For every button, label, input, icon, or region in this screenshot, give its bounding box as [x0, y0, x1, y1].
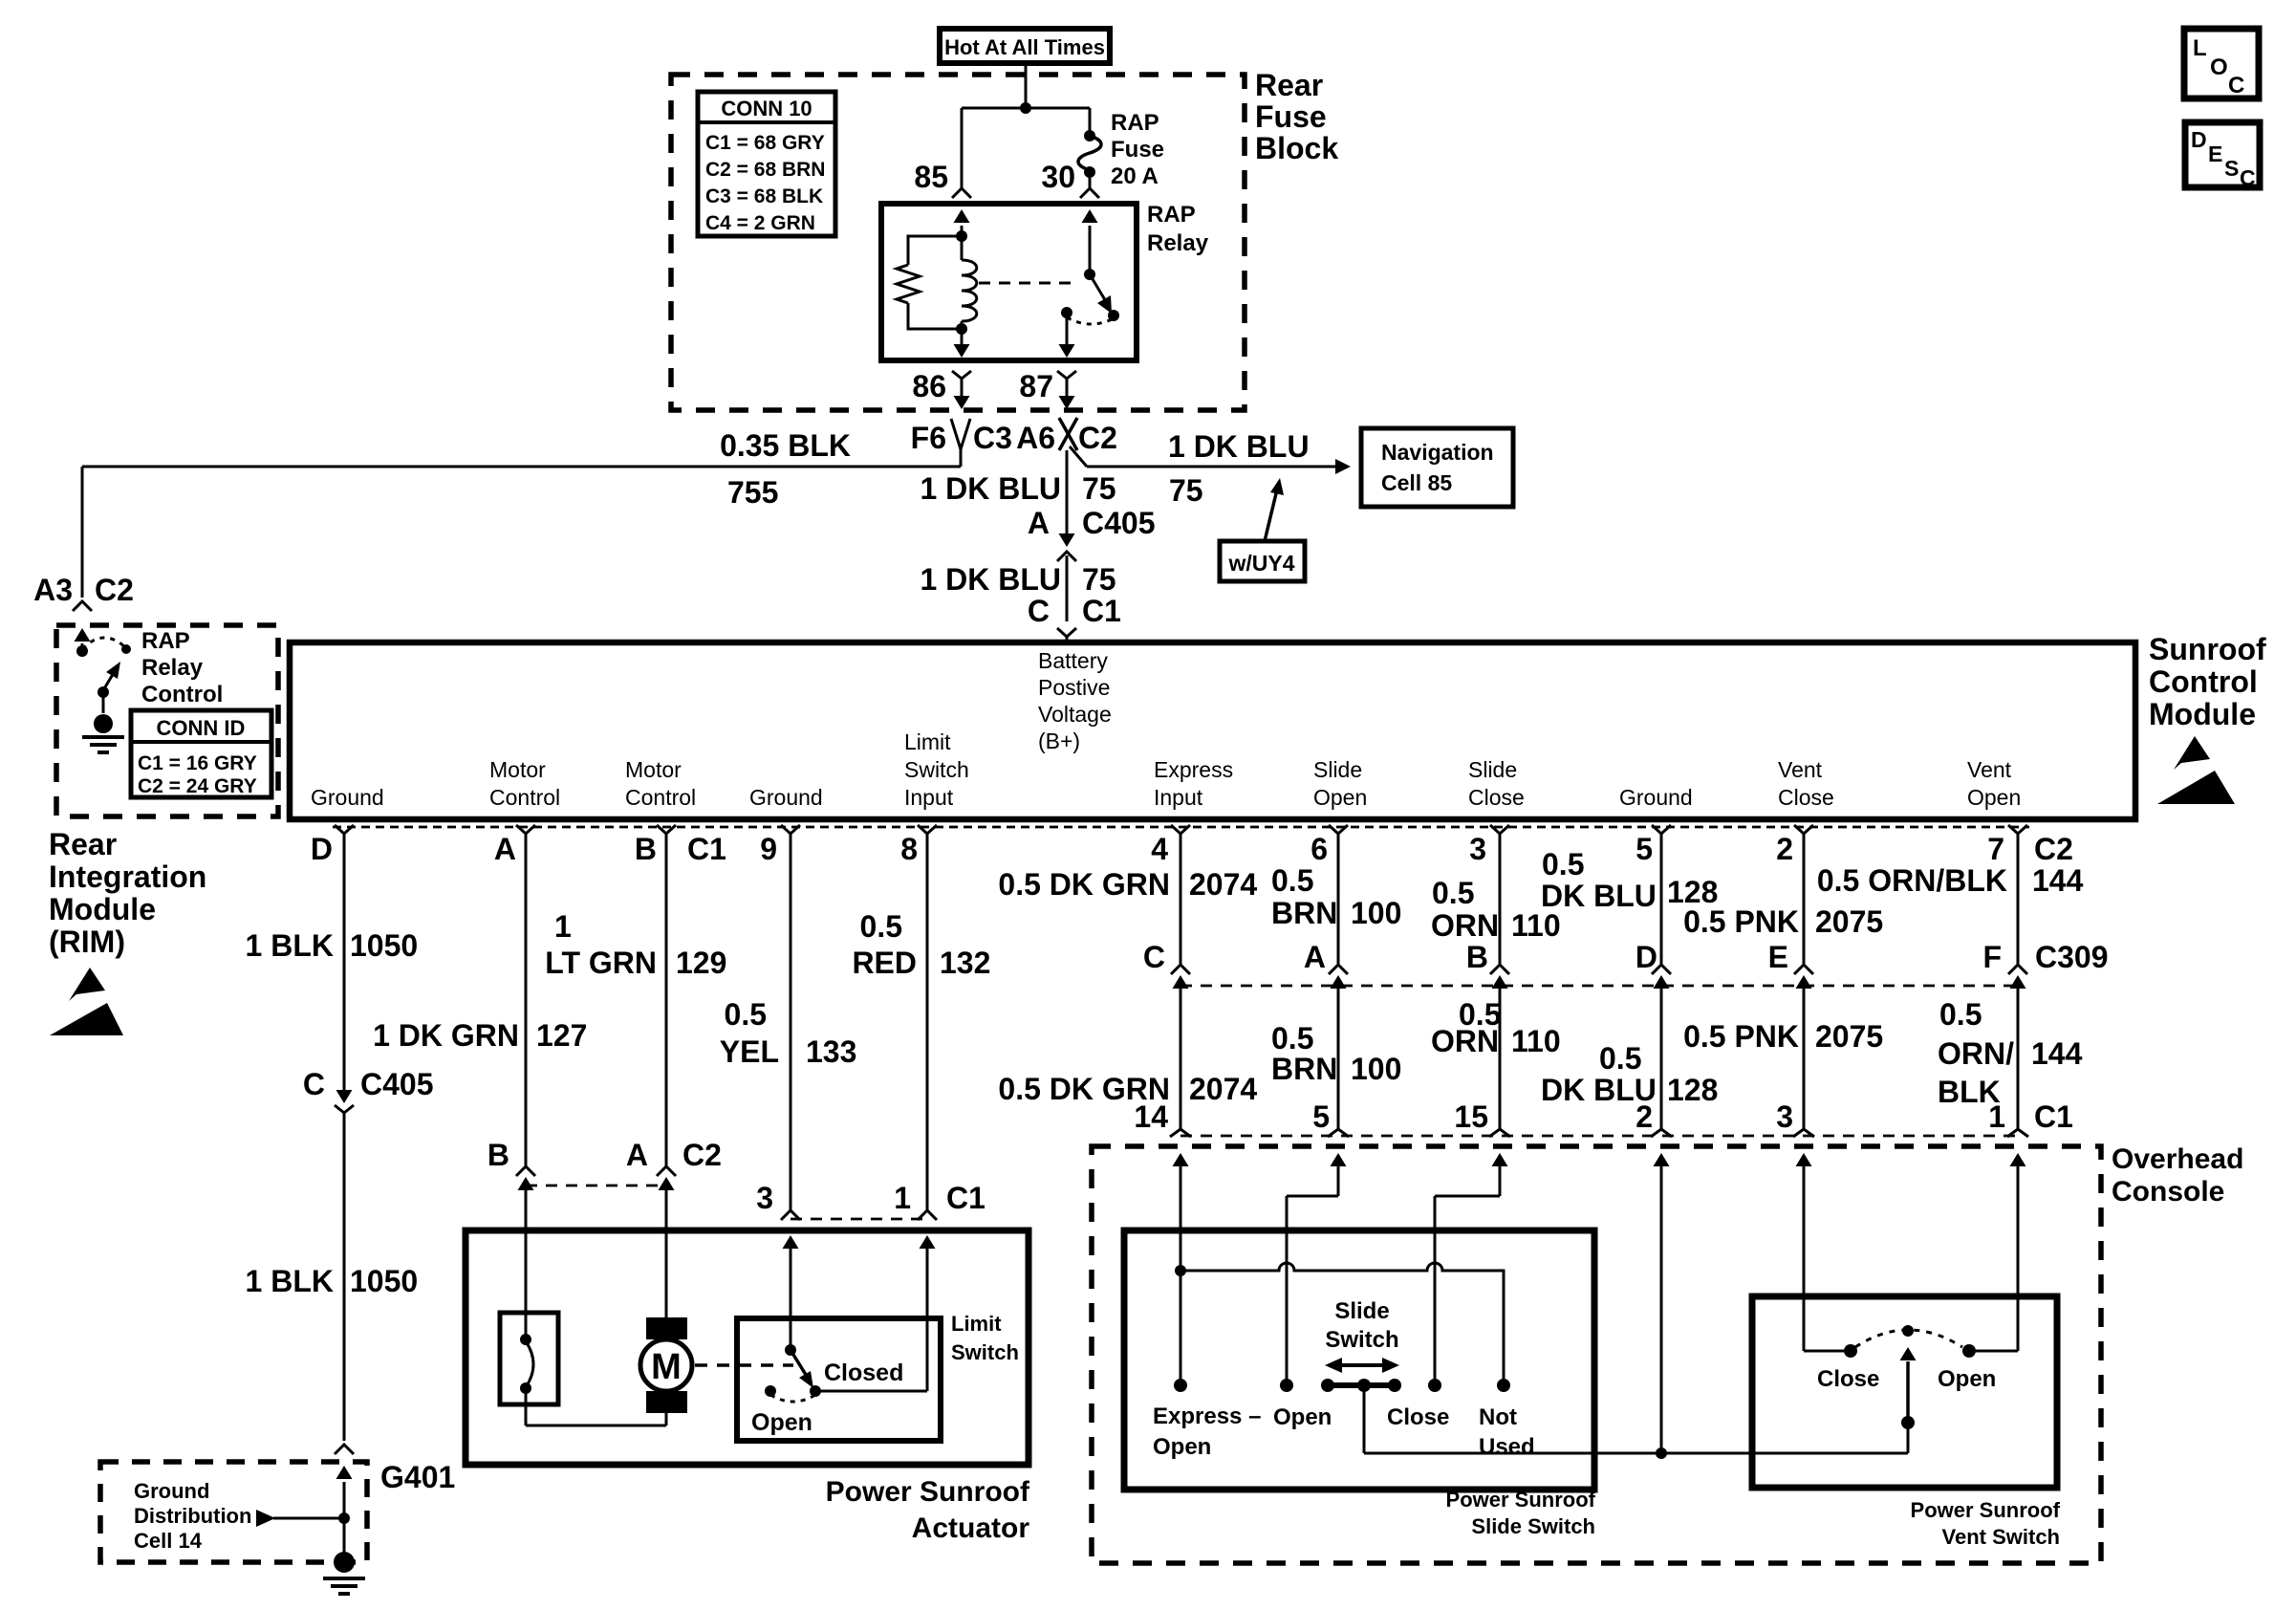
svg-text:1 DK BLU: 1 DK BLU — [1168, 429, 1310, 464]
svg-text:O: O — [2210, 54, 2228, 80]
svg-text:8: 8 — [900, 832, 918, 866]
svg-text:(RIM): (RIM) — [49, 925, 125, 959]
svg-text:15: 15 — [1454, 1099, 1488, 1134]
svg-text:30: 30 — [1041, 160, 1075, 194]
svg-text:Navigation: Navigation — [1381, 440, 1494, 465]
svg-text:Not: Not — [1479, 1404, 1517, 1430]
svg-text:D: D — [2191, 127, 2207, 152]
svg-text:Control: Control — [2149, 664, 2258, 699]
svg-text:1050: 1050 — [350, 928, 418, 963]
svg-text:1 DK BLU: 1 DK BLU — [920, 471, 1061, 506]
svg-text:ORN: ORN — [1431, 1024, 1499, 1058]
svg-text:Ground: Ground — [1619, 785, 1693, 810]
svg-text:Open: Open — [1938, 1366, 1996, 1392]
svg-text:Overhead: Overhead — [2112, 1143, 2243, 1175]
svg-text:6: 6 — [1310, 832, 1328, 866]
svg-text:CONN ID: CONN ID — [157, 716, 246, 740]
svg-text:Slide: Slide — [1313, 757, 1362, 782]
svg-text:0.5: 0.5 — [725, 997, 767, 1032]
svg-text:S: S — [2224, 156, 2239, 181]
svg-text:87: 87 — [1019, 369, 1053, 403]
svg-text:C1 = 16 GRY: C1 = 16 GRY — [138, 752, 257, 774]
svg-text:Input: Input — [904, 785, 954, 810]
svg-text:75: 75 — [1082, 471, 1116, 506]
svg-text:1: 1 — [894, 1181, 911, 1215]
svg-text:86: 86 — [912, 369, 946, 403]
svg-text:Postive: Postive — [1038, 675, 1110, 700]
svg-text:Limit: Limit — [951, 1312, 1002, 1336]
svg-text:110: 110 — [1511, 908, 1561, 943]
svg-text:C3: C3 — [973, 421, 1012, 455]
svg-text:0.5: 0.5 — [1599, 1041, 1641, 1076]
svg-text:Used: Used — [1479, 1434, 1535, 1460]
svg-text:Input: Input — [1154, 785, 1203, 810]
svg-text:0.5: 0.5 — [1542, 847, 1584, 881]
svg-text:D: D — [311, 832, 333, 866]
svg-text:Rear: Rear — [49, 827, 117, 861]
svg-text:100: 100 — [1351, 896, 1401, 930]
svg-text:5: 5 — [1312, 1099, 1330, 1134]
svg-text:14: 14 — [1134, 1099, 1168, 1134]
svg-text:133: 133 — [806, 1034, 856, 1069]
svg-text:E: E — [2208, 141, 2222, 166]
svg-text:C1: C1 — [687, 832, 726, 866]
svg-text:Close: Close — [1817, 1366, 1879, 1392]
svg-text:Ground: Ground — [749, 785, 823, 810]
svg-text:RAP: RAP — [1111, 110, 1159, 136]
svg-text:DK BLU: DK BLU — [1541, 879, 1657, 913]
svg-text:Sunroof: Sunroof — [2149, 632, 2266, 666]
svg-text:1: 1 — [554, 909, 572, 944]
svg-text:0.5: 0.5 — [860, 909, 902, 944]
svg-text:C309: C309 — [2035, 940, 2109, 974]
svg-text:1 BLK: 1 BLK — [246, 1264, 334, 1298]
svg-text:C4 = 2 GRN: C4 = 2 GRN — [705, 212, 815, 234]
svg-text:B: B — [635, 832, 657, 866]
svg-text:9: 9 — [760, 832, 777, 866]
svg-text:Power Sunroof: Power Sunroof — [1911, 1498, 2061, 1522]
svg-text:Motor: Motor — [489, 757, 546, 782]
svg-text:Open: Open — [1273, 1404, 1332, 1430]
svg-text:1 DK BLU: 1 DK BLU — [920, 562, 1061, 597]
svg-text:Fuse: Fuse — [1255, 99, 1327, 134]
svg-text:Ground: Ground — [134, 1479, 209, 1503]
svg-text:1 DK GRN: 1 DK GRN — [373, 1018, 519, 1053]
svg-text:RAP: RAP — [141, 628, 190, 654]
svg-text:C: C — [2240, 165, 2256, 190]
svg-text:C1: C1 — [946, 1181, 986, 1215]
svg-text:BRN: BRN — [1271, 896, 1337, 930]
svg-text:C2 = 68 BRN: C2 = 68 BRN — [705, 159, 825, 181]
svg-text:Open: Open — [1153, 1434, 1211, 1460]
svg-text:Module: Module — [2149, 697, 2256, 731]
svg-text:Slide: Slide — [1468, 757, 1517, 782]
svg-text:Limit: Limit — [904, 729, 951, 754]
svg-text:3: 3 — [1776, 1099, 1793, 1134]
svg-text:Closed: Closed — [824, 1360, 903, 1386]
svg-text:RED: RED — [852, 946, 917, 980]
svg-text:YEL: YEL — [720, 1034, 779, 1069]
svg-text:Power Sunroof: Power Sunroof — [826, 1476, 1030, 1508]
svg-text:RAP: RAP — [1147, 202, 1196, 228]
svg-text:75: 75 — [1169, 473, 1203, 508]
svg-text:2: 2 — [1776, 832, 1793, 866]
svg-text:Battery: Battery — [1038, 648, 1108, 673]
svg-text:Close: Close — [1778, 785, 1834, 810]
svg-text:7: 7 — [1987, 832, 2004, 866]
svg-text:G401: G401 — [380, 1460, 455, 1494]
svg-text:755: 755 — [727, 475, 778, 510]
svg-text:C1 = 68 GRY: C1 = 68 GRY — [705, 132, 825, 154]
svg-text:A: A — [494, 832, 516, 866]
svg-text:Express –: Express – — [1153, 1403, 1261, 1429]
svg-text:0.5 PNK: 0.5 PNK — [1683, 904, 1799, 939]
svg-text:C1: C1 — [2034, 1099, 2073, 1134]
svg-text:A3: A3 — [33, 573, 73, 607]
svg-text:Control: Control — [141, 682, 223, 707]
svg-text:3: 3 — [756, 1181, 773, 1215]
svg-text:Express: Express — [1154, 757, 1233, 782]
svg-text:85: 85 — [914, 160, 948, 194]
svg-text:0.35 BLK: 0.35 BLK — [720, 428, 851, 463]
svg-text:B: B — [487, 1138, 509, 1172]
svg-text:Console: Console — [2112, 1176, 2224, 1207]
svg-text:C2 = 24 GRY: C2 = 24 GRY — [138, 775, 257, 797]
svg-text:Distribution: Distribution — [134, 1504, 251, 1528]
svg-text:Close: Close — [1468, 785, 1525, 810]
svg-text:A6: A6 — [1016, 421, 1055, 455]
svg-text:C: C — [1028, 594, 1050, 628]
svg-text:2074: 2074 — [1189, 1072, 1257, 1106]
svg-text:A: A — [626, 1138, 648, 1172]
svg-text:F: F — [1982, 940, 2002, 974]
svg-text:128: 128 — [1667, 1073, 1718, 1107]
svg-text:w/UY4: w/UY4 — [1227, 551, 1294, 576]
svg-text:Cell 85: Cell 85 — [1381, 470, 1452, 495]
svg-text:Vent: Vent — [1967, 757, 2012, 782]
svg-text:Motor: Motor — [625, 757, 682, 782]
svg-text:C405: C405 — [1082, 506, 1156, 540]
svg-text:ORN: ORN — [1431, 908, 1499, 943]
svg-text:1: 1 — [1988, 1099, 2005, 1134]
svg-text:Module: Module — [49, 892, 156, 926]
svg-text:Fuse: Fuse — [1111, 137, 1164, 163]
svg-text:2075: 2075 — [1815, 1019, 1883, 1054]
svg-text:75: 75 — [1082, 562, 1116, 597]
svg-text:0.5: 0.5 — [1939, 997, 1982, 1032]
svg-text:110: 110 — [1511, 1024, 1561, 1058]
svg-text:C3 = 68 BLK: C3 = 68 BLK — [705, 185, 823, 207]
svg-text:1 BLK: 1 BLK — [246, 928, 334, 963]
svg-text:C1: C1 — [1082, 594, 1121, 628]
svg-text:F6: F6 — [911, 421, 946, 455]
svg-text:Open: Open — [1313, 785, 1367, 810]
svg-text:Control: Control — [625, 785, 696, 810]
svg-text:Voltage: Voltage — [1038, 702, 1112, 727]
svg-text:129: 129 — [676, 946, 726, 980]
svg-text:L: L — [2193, 35, 2207, 61]
svg-text:Switch: Switch — [951, 1340, 1019, 1364]
svg-text:0.5: 0.5 — [1432, 876, 1474, 910]
svg-text:Ground: Ground — [311, 785, 384, 810]
svg-text:127: 127 — [536, 1018, 587, 1053]
svg-text:(B+): (B+) — [1038, 729, 1080, 753]
svg-text:B: B — [1466, 940, 1488, 974]
svg-text:Hot At All Times: Hot At All Times — [944, 35, 1105, 59]
svg-text:E: E — [1768, 940, 1788, 974]
svg-text:Open: Open — [751, 1409, 812, 1436]
svg-text:Slide Switch: Slide Switch — [1471, 1514, 1595, 1538]
svg-text:Block: Block — [1255, 131, 1338, 165]
svg-text:C405: C405 — [360, 1067, 434, 1101]
svg-text:2074: 2074 — [1189, 867, 1257, 902]
svg-text:C: C — [2228, 73, 2244, 98]
svg-text:0.5 DK GRN: 0.5 DK GRN — [998, 867, 1170, 902]
svg-text:0.5: 0.5 — [1271, 863, 1313, 898]
svg-text:D: D — [1635, 940, 1657, 974]
svg-text:CONN 10: CONN 10 — [721, 97, 812, 120]
svg-text:LT GRN: LT GRN — [545, 946, 657, 980]
svg-text:Control: Control — [489, 785, 560, 810]
svg-text:M: M — [651, 1347, 682, 1387]
svg-text:Slide: Slide — [1334, 1298, 1389, 1324]
svg-text:100: 100 — [1351, 1052, 1401, 1086]
svg-text:Close: Close — [1387, 1404, 1449, 1430]
svg-text:A: A — [1304, 940, 1326, 974]
svg-text:Vent Switch: Vent Switch — [1942, 1525, 2060, 1549]
svg-text:Cell 14: Cell 14 — [134, 1529, 203, 1553]
svg-text:2075: 2075 — [1815, 904, 1883, 939]
svg-text:C: C — [303, 1067, 325, 1101]
svg-text:132: 132 — [940, 946, 990, 980]
svg-text:0.5 PNK: 0.5 PNK — [1683, 1019, 1799, 1054]
svg-text:Actuator: Actuator — [912, 1512, 1030, 1544]
svg-text:20 A: 20 A — [1111, 163, 1159, 189]
svg-text:C2: C2 — [95, 573, 134, 607]
svg-text:3: 3 — [1469, 832, 1486, 866]
svg-text:Switch: Switch — [1325, 1327, 1398, 1353]
svg-text:5: 5 — [1635, 832, 1653, 866]
svg-text:Switch: Switch — [904, 757, 969, 782]
svg-text:A: A — [1028, 506, 1050, 540]
svg-text:0.5: 0.5 — [1271, 1021, 1313, 1055]
svg-text:Vent: Vent — [1778, 757, 1823, 782]
svg-text:Relay: Relay — [141, 655, 204, 681]
svg-text:0.5 ORN/BLK: 0.5 ORN/BLK — [1817, 863, 2007, 898]
svg-text:Integration: Integration — [49, 859, 206, 894]
svg-text:C2: C2 — [2034, 832, 2073, 866]
svg-text:Rear: Rear — [1255, 68, 1323, 102]
svg-text:2: 2 — [1635, 1099, 1653, 1134]
svg-text:1050: 1050 — [350, 1264, 418, 1298]
svg-text:144: 144 — [2032, 863, 2084, 898]
svg-text:Relay: Relay — [1147, 230, 1209, 256]
svg-text:C2: C2 — [1078, 421, 1117, 455]
svg-text:Power Sunroof: Power Sunroof — [1446, 1488, 1596, 1512]
svg-text:BRN: BRN — [1271, 1052, 1337, 1086]
svg-text:C2: C2 — [682, 1138, 722, 1172]
svg-text:4: 4 — [1151, 832, 1168, 866]
svg-text:C: C — [1143, 940, 1165, 974]
svg-text:Open: Open — [1967, 785, 2021, 810]
svg-text:ORN/: ORN/ — [1938, 1036, 2014, 1071]
svg-text:144: 144 — [2031, 1036, 2083, 1071]
